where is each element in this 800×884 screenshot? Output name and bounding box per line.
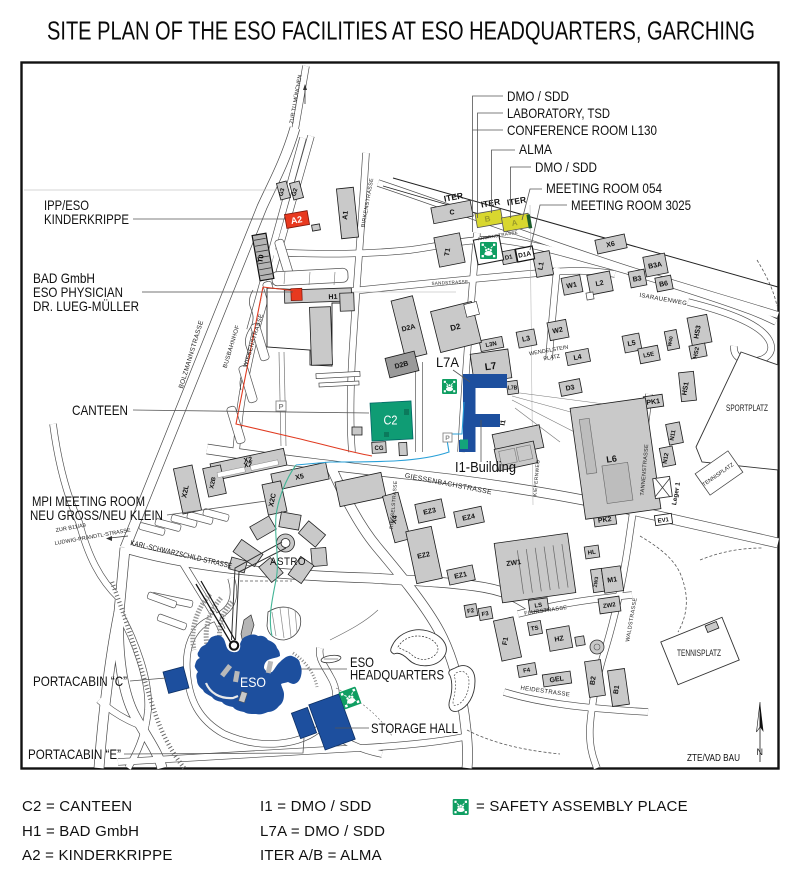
svg-text:L7: L7 [484,361,498,374]
svg-text:B2: B2 [589,676,597,686]
svg-text:CONFERENCE ROOM L130: CONFERENCE ROOM L130 [507,122,657,138]
svg-text:C2 = CANTEEN: C2 = CANTEEN [22,798,132,815]
svg-text:PORTACABIN “C”: PORTACABIN “C” [33,673,127,689]
svg-text:LABORATORY, TSD: LABORATORY, TSD [507,105,610,121]
svg-text:P: P [445,435,450,442]
svg-text:= SAFETY ASSEMBLY PLACE: = SAFETY ASSEMBLY PLACE [476,798,688,815]
svg-text:MEETING ROOM 054: MEETING ROOM 054 [546,180,662,196]
svg-text:HEADQUARTERS: HEADQUARTERS [350,667,444,683]
svg-text:MEETING ROOM 3025: MEETING ROOM 3025 [571,197,691,213]
svg-text:A1: A1 [342,210,350,220]
svg-text:TENNISPLATZ: TENNISPLATZ [677,648,721,658]
svg-text:H1: H1 [328,294,337,301]
svg-text:DR. LUEG-MÜLLER: DR. LUEG-MÜLLER [33,297,139,314]
svg-text:L6: L6 [606,453,618,464]
svg-text:B1: B1 [613,685,621,695]
svg-text:HL: HL [587,550,596,557]
svg-text:I1 = DMO / SDD: I1 = DMO / SDD [260,798,372,815]
svg-text:NEU GROSS/NEU KLEIN: NEU GROSS/NEU KLEIN [30,507,163,523]
svg-text:L7A = DMO / SDD: L7A = DMO / SDD [260,823,385,840]
svg-text:C2: C2 [384,414,398,428]
svg-text:PORTACABIN “E”: PORTACABIN “E” [28,746,121,762]
svg-text:C: C [449,209,454,216]
svg-text:F1: F1 [502,636,510,645]
svg-text:H1 = BAD GmbH: H1 = BAD GmbH [22,823,139,840]
svg-text:ZTE/VAD BAU: ZTE/VAD BAU [687,752,740,764]
svg-text:N: N [757,747,764,757]
svg-text:KINDERKRIPPE: KINDERKRIPPE [44,211,129,227]
svg-text:L7B: L7B [508,385,518,391]
svg-text:A2 = KINDERKRIPPE: A2 = KINDERKRIPPE [22,847,173,864]
svg-text:STORAGE HALL: STORAGE HALL [371,720,458,736]
svg-text:SITE PLAN OF THE ESO FACILITIE: SITE PLAN OF THE ESO FACILITIES AT ESO H… [47,16,755,46]
svg-text:ALMA: ALMA [519,141,553,157]
svg-text:A2: A2 [290,214,303,226]
svg-text:I1-Building: I1-Building [455,460,516,476]
svg-text:CG: CG [375,446,384,452]
svg-text:DMO / SDD: DMO / SDD [507,88,569,104]
svg-text:ITER A/B = ALMA: ITER A/B = ALMA [260,847,382,864]
svg-text:ASTRO: ASTRO [270,556,306,568]
svg-text:DMO / SDD: DMO / SDD [535,159,597,175]
svg-text:SPORTPLATZ: SPORTPLATZ [726,403,768,414]
svg-text:CANTEEN: CANTEEN [72,402,128,418]
svg-text:M1: M1 [607,576,618,584]
svg-text:ESO: ESO [240,674,266,690]
svg-text:L7A: L7A [436,354,460,370]
svg-text:P: P [278,402,283,411]
svg-text:T0: T0 [257,254,265,263]
